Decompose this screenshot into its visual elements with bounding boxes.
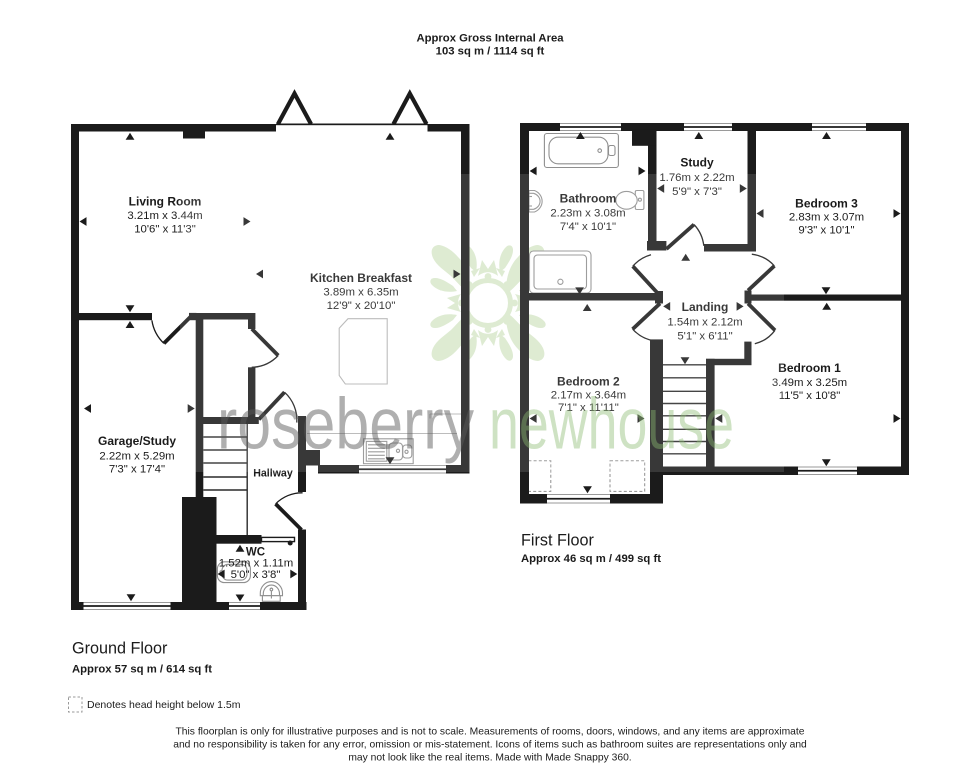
svg-text:Approx Gross Internal Area: Approx Gross Internal Area [416,33,564,45]
svg-text:Approx 57 sq m / 614 sq ft: Approx 57 sq m / 614 sq ft [72,664,212,676]
svg-text:may not look like the real ite: may not look like the real items. Made w… [348,753,631,764]
svg-text:Garage/Study: Garage/Study [98,434,176,448]
svg-text:5'0" x 3'8": 5'0" x 3'8" [231,569,281,581]
svg-text:Bedroom 1: Bedroom 1 [778,361,841,375]
svg-text:1.52m x 1.11m: 1.52m x 1.11m [219,557,294,569]
svg-text:Ground Floor: Ground Floor [72,640,168,658]
svg-text:9'3" x 10'1": 9'3" x 10'1" [798,225,854,237]
svg-text:First Floor: First Floor [521,532,594,550]
svg-text:Approx 46 sq m / 499 sq ft: Approx 46 sq m / 499 sq ft [521,553,661,565]
svg-text:roseberry: roseberry [217,385,474,465]
svg-text:newhouse: newhouse [489,385,734,465]
svg-text:11'5" x 10'8": 11'5" x 10'8" [779,390,841,402]
svg-text:2.22m x 5.29m: 2.22m x 5.29m [99,451,174,463]
svg-text:7'3" x 17'4": 7'3" x 17'4" [109,464,165,476]
svg-text:and no responsibility is taken: and no responsibility is taken for any e… [173,740,807,751]
svg-text:Bedroom 3: Bedroom 3 [795,197,858,211]
svg-text:This floorplan is only for ill: This floorplan is only for illustrative … [176,727,805,738]
svg-text:103 sq m / 1114 sq ft: 103 sq m / 1114 sq ft [436,46,545,58]
svg-text:Denotes head height below 1.5m: Denotes head height below 1.5m [87,699,241,711]
svg-text:2.83m x 3.07m: 2.83m x 3.07m [789,212,864,224]
svg-text:Study: Study [680,156,714,170]
